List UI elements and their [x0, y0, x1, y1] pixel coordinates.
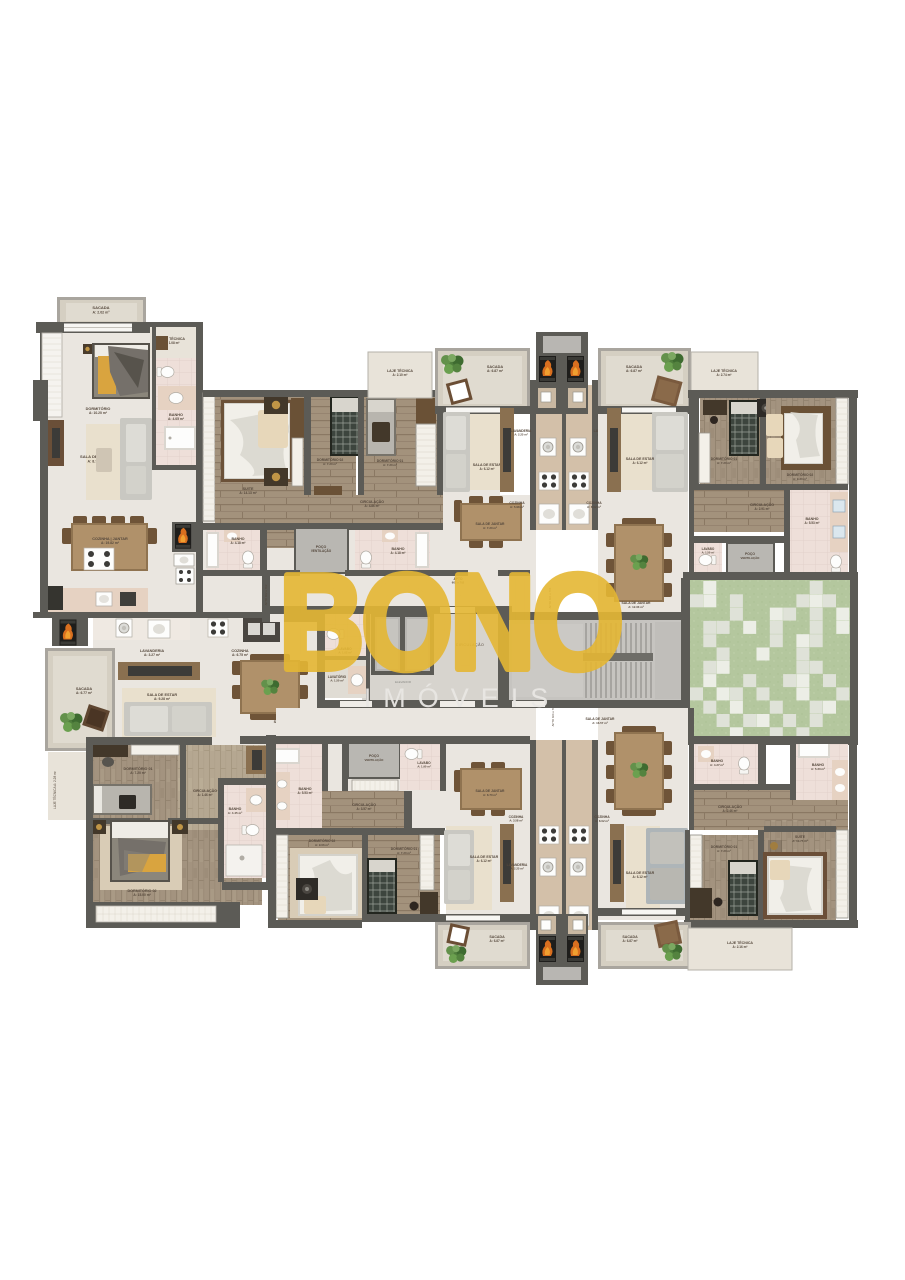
svg-text:A: 4.45 m²: A: 4.45 m²	[228, 811, 242, 815]
svg-text:VENTILAÇÃO: VENTILAÇÃO	[365, 757, 385, 762]
svg-text:A: 6.87 m²: A: 6.87 m²	[626, 369, 643, 373]
svg-text:A: 4.18 m²: A: 4.18 m²	[231, 541, 246, 545]
svg-text:A: 7.20 m²: A: 7.20 m²	[717, 461, 731, 465]
svg-text:A: 6.12 m²: A: 6.12 m²	[480, 467, 495, 471]
svg-text:A: 4.86 m²: A: 4.86 m²	[365, 504, 380, 508]
svg-text:A: 2.91 m²: A: 2.91 m²	[755, 507, 770, 511]
svg-text:A: 6.87 m²: A: 6.87 m²	[490, 939, 505, 943]
svg-text:A: 8.02 m²: A: 8.02 m²	[587, 505, 601, 509]
svg-text:BONO: BONO	[279, 546, 621, 697]
svg-text:A: 7.20 m²: A: 7.20 m²	[130, 771, 146, 775]
svg-text:A: 6.12 m²: A: 6.12 m²	[633, 461, 648, 465]
svg-text:SACADA: SACADA	[92, 305, 109, 310]
svg-text:A: 9.30 m²: A: 9.30 m²	[793, 477, 807, 481]
svg-text:A: 1.46 m²: A: 1.46 m²	[198, 793, 213, 797]
svg-text:A: 7.20 m²: A: 7.20 m²	[397, 851, 411, 855]
svg-text:A: 7.20 m²: A: 7.20 m²	[323, 462, 337, 466]
svg-text:A: 1.90 m²: A: 1.90 m²	[417, 765, 430, 769]
svg-text:A: 6.12 m²: A: 6.12 m²	[633, 875, 648, 879]
svg-text:IMÓVEIS: IMÓVEIS	[364, 682, 561, 713]
svg-text:A: 15.00 m²: A: 15.00 m²	[133, 893, 151, 897]
svg-text:A: 2.74 m²: A: 2.74 m²	[717, 373, 732, 377]
svg-text:A: 6.12 m²: A: 6.12 m²	[477, 859, 492, 863]
svg-text:A: 3.58 m²: A: 3.58 m²	[509, 819, 522, 823]
svg-text:A: 14.13 m²: A: 14.13 m²	[239, 491, 257, 495]
svg-text:A: 7.20 m²: A: 7.20 m²	[383, 463, 397, 467]
svg-text:A: 9.28 m²: A: 9.28 m²	[154, 697, 171, 701]
svg-text:A: 6.87 m²: A: 6.87 m²	[487, 369, 504, 373]
svg-text:A: 2.25 m²: A: 2.25 m²	[510, 867, 523, 871]
svg-text:A: 5.98 m²: A: 5.98 m²	[510, 505, 524, 509]
svg-text:A: 3.27 m²: A: 3.27 m²	[144, 653, 161, 657]
svg-text:A: 2.10 m²: A: 2.10 m²	[393, 373, 408, 377]
svg-text:APTO 602 e 702: APTO 602 e 702	[264, 584, 268, 605]
svg-text:A: 1.50 m²: A: 1.50 m²	[702, 551, 715, 555]
svg-text:A: 2.25 m²: A: 2.25 m²	[514, 433, 527, 437]
svg-text:A: 16.57 m²: A: 16.57 m²	[592, 721, 608, 725]
svg-text:A: 3.57 m²: A: 3.57 m²	[357, 807, 372, 811]
svg-text:A: 2.46 m²: A: 2.46 m²	[723, 809, 738, 813]
svg-text:A: 10.20 m²: A: 10.20 m²	[89, 411, 108, 415]
svg-text:A: 4.05 m²: A: 4.05 m²	[168, 417, 185, 421]
svg-text:A: 6.87 m²: A: 6.87 m²	[623, 939, 638, 943]
svg-text:A: 19.82 m²: A: 19.82 m²	[101, 541, 120, 545]
svg-text:A: 9.06 m²: A: 9.06 m²	[315, 843, 329, 847]
svg-text:A: 2.02 m²: A: 2.02 m²	[92, 310, 110, 314]
svg-text:A: 7.20 m²: A: 7.20 m²	[483, 526, 497, 530]
svg-text:A: 5.53 m²: A: 5.53 m²	[805, 521, 820, 525]
svg-text:A: 12.33 m²: A: 12.33 m²	[628, 605, 644, 609]
svg-text:A: 8.70 m²: A: 8.70 m²	[483, 793, 497, 797]
svg-text:A: 8.02 m²: A: 8.02 m²	[595, 819, 609, 823]
svg-text:LAVABO: LAVABO	[702, 547, 715, 551]
svg-text:A: 5.53 m²: A: 5.53 m²	[298, 791, 313, 795]
svg-text:VENTILAÇÃO: VENTILAÇÃO	[741, 555, 761, 560]
svg-text:A: 4.27 m²: A: 4.27 m²	[710, 763, 724, 767]
svg-text:A: 10.75 m²: A: 10.75 m²	[792, 839, 808, 843]
svg-text:A: 6.75 m²: A: 6.75 m²	[232, 653, 249, 657]
svg-text:A: 6.77 m²: A: 6.77 m²	[76, 691, 93, 695]
svg-text:A: 2.16 m²: A: 2.16 m²	[733, 945, 748, 949]
svg-text:A: 5.33 m²: A: 5.33 m²	[811, 767, 825, 771]
svg-text:LAJE TÉCNICA A: 2.28 m²: LAJE TÉCNICA A: 2.28 m²	[52, 771, 57, 809]
svg-text:A: 7.20 m²: A: 7.20 m²	[717, 849, 731, 853]
